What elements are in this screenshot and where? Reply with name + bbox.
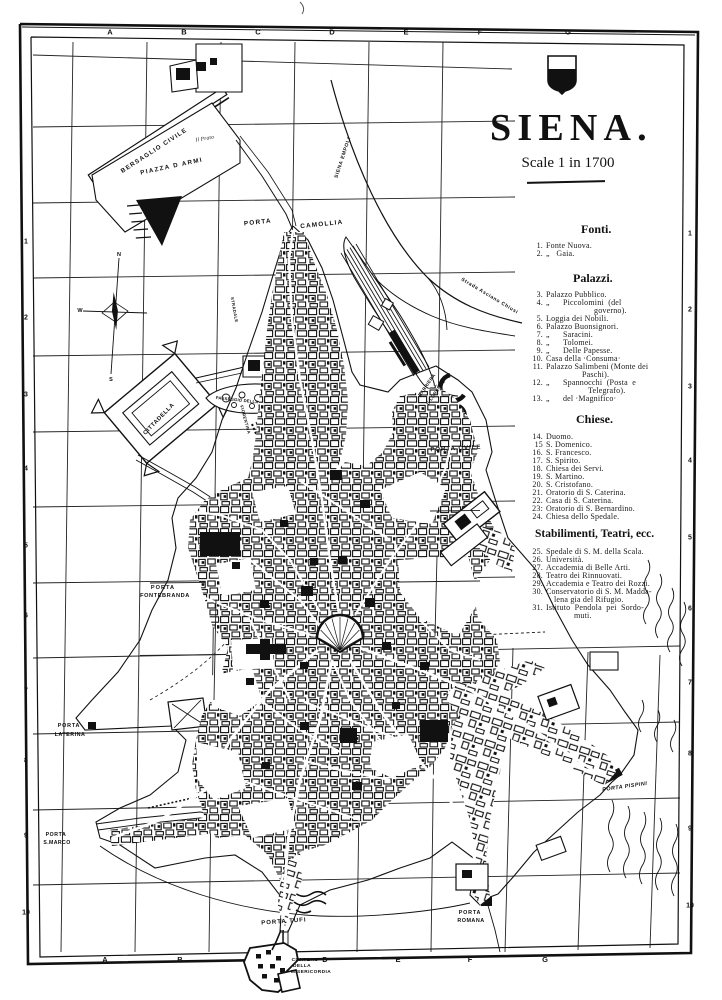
svg-text:E: E: [403, 28, 408, 37]
svg-text:C: C: [255, 28, 261, 37]
svg-text:ROMANA: ROMANA: [457, 918, 484, 924]
svg-text:STRADALE: STRADALE: [230, 297, 239, 323]
svg-text:CIMITERO: CIMITERO: [292, 957, 319, 963]
svg-text:3: 3: [24, 392, 28, 399]
svg-text:Strada Asciano Chiusi: Strada Asciano Chiusi: [460, 277, 519, 316]
svg-text:2: 2: [24, 315, 28, 322]
svg-text:9: 9: [24, 833, 28, 840]
svg-text:5: 5: [24, 543, 28, 550]
svg-text:8: 8: [24, 758, 28, 765]
svg-text:G: G: [542, 955, 548, 964]
svg-text:FONTEBRANDA: FONTEBRANDA: [140, 593, 190, 599]
svg-text:A: A: [102, 955, 108, 964]
svg-text:POZZA: POZZA: [211, 538, 228, 543]
svg-text:DELLA: DELLA: [293, 963, 311, 969]
svg-text:CAMOLLIA: CAMOLLIA: [300, 219, 344, 230]
svg-text:PORTA: PORTA: [244, 218, 272, 228]
svg-text:1: 1: [24, 239, 28, 246]
svg-text:10: 10: [686, 903, 694, 910]
svg-text:W: W: [77, 308, 83, 314]
svg-text:N: N: [117, 252, 121, 258]
svg-text:G: G: [565, 28, 571, 37]
svg-text:7: 7: [24, 688, 28, 695]
svg-text:2: 2: [688, 307, 692, 314]
svg-text:6: 6: [24, 613, 28, 620]
svg-text:6: 6: [688, 606, 692, 613]
svg-text:D: D: [322, 955, 328, 964]
svg-text:4: 4: [688, 458, 692, 465]
svg-text:S.MARCO: S.MARCO: [43, 840, 70, 846]
svg-text:S: S: [109, 377, 113, 383]
svg-text:PORTA PISPINI: PORTA PISPINI: [602, 781, 648, 793]
svg-text:PORTA: PORTA: [46, 832, 67, 838]
svg-text:B: B: [181, 28, 187, 37]
svg-text:4: 4: [24, 466, 28, 473]
svg-text:PORTA: PORTA: [151, 585, 175, 591]
svg-text:MISERICORDIA: MISERICORDIA: [291, 969, 331, 975]
svg-text:8: 8: [688, 751, 692, 758]
svg-text:1: 1: [688, 231, 692, 238]
svg-text:PORTA: PORTA: [459, 910, 481, 916]
svg-text:SIENA EMPOLI: SIENA EMPOLI: [334, 136, 353, 179]
svg-text:3: 3: [688, 384, 692, 391]
svg-text:5: 5: [688, 535, 692, 542]
svg-text:A: A: [107, 28, 113, 37]
svg-text:F: F: [468, 955, 473, 964]
svg-text:B: B: [177, 955, 183, 964]
svg-text:9: 9: [688, 826, 692, 833]
svg-text:PORTA: PORTA: [58, 723, 80, 729]
svg-text:D: D: [329, 28, 335, 37]
svg-text:LATERINA: LATERINA: [55, 732, 86, 738]
svg-text:7: 7: [688, 680, 692, 687]
svg-text:10: 10: [22, 910, 30, 917]
svg-text:E: E: [395, 955, 400, 964]
svg-text:F: F: [478, 28, 483, 37]
